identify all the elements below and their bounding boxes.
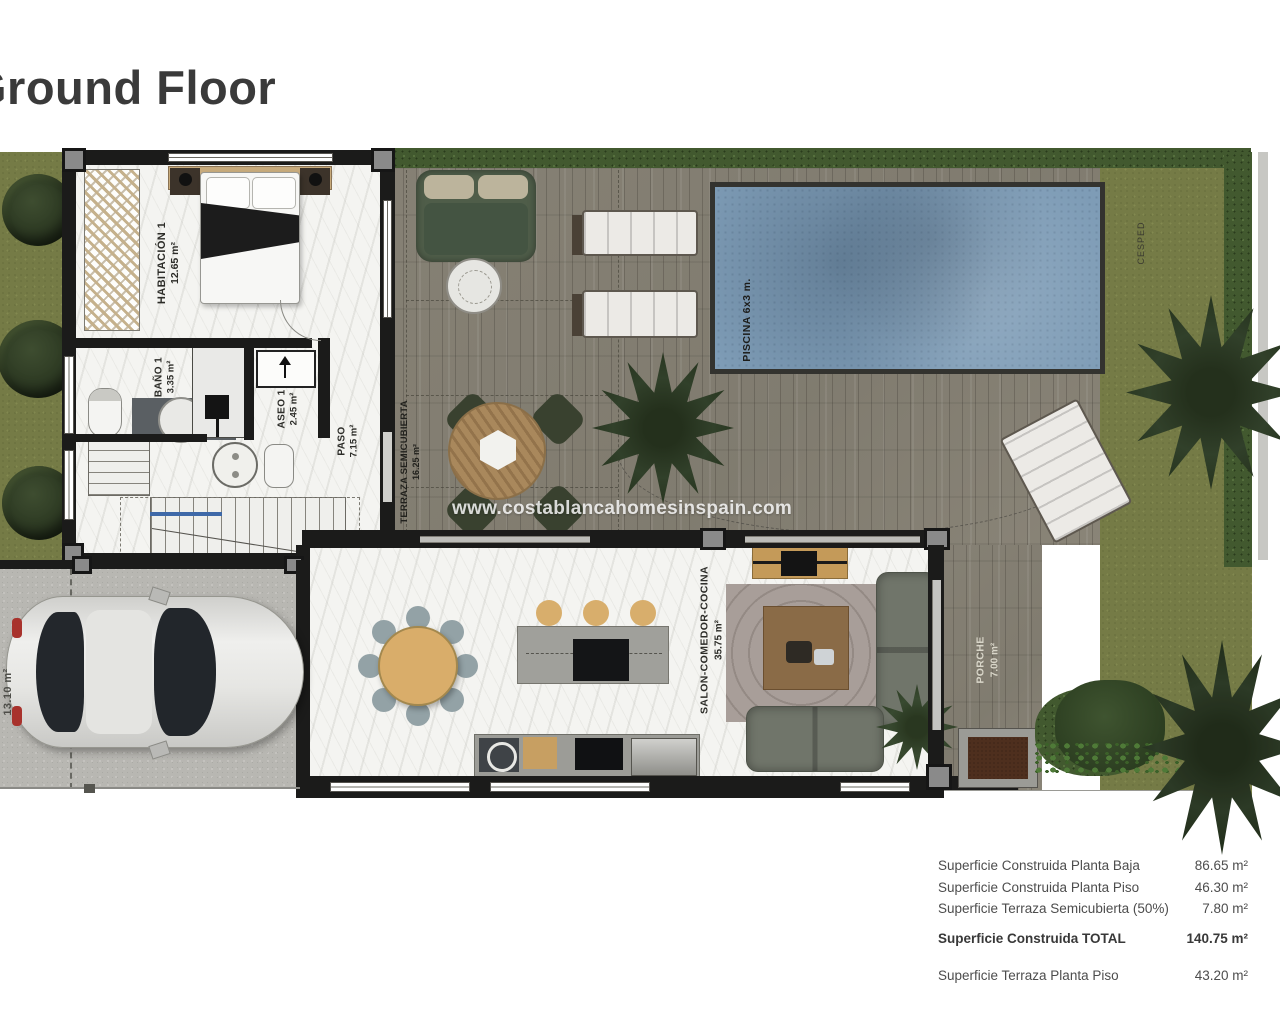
summary-label: Superficie Construida TOTAL xyxy=(938,928,1176,950)
bed xyxy=(200,172,300,304)
doormat-frame xyxy=(958,728,1038,788)
sliding-door-to-porche xyxy=(932,580,941,730)
room-label-aseo-1: ASEO 1 2.45 m² xyxy=(275,389,300,428)
aseo-toilet xyxy=(264,444,294,488)
toilet xyxy=(88,388,122,438)
summary-row: Superficie Construida Planta Baja 86.65 … xyxy=(938,855,1248,877)
rear-window xyxy=(36,612,84,732)
room-name: PORCHE xyxy=(975,636,989,683)
room-label-bano-1: BAÑO 1 3.35 m² xyxy=(152,357,177,397)
wall xyxy=(244,344,254,440)
room-area: 13.10 m² xyxy=(1,668,15,715)
room-name: CESPED xyxy=(1136,221,1148,264)
watermark: www.costablancahomesinspain.com xyxy=(452,498,782,520)
window xyxy=(64,450,74,520)
sofa xyxy=(746,706,884,772)
room-label-paso: PASO 7.15 m² xyxy=(335,425,360,458)
summary-row-total: Superficie Construida TOTAL 140.75 m² xyxy=(938,928,1248,950)
room-label-terraza: TERRAZA SEMICUBIERTA 16.25 m² xyxy=(399,400,423,523)
bar-stools xyxy=(536,600,562,626)
summary-value: 7.80 m² xyxy=(1176,898,1248,920)
pillow xyxy=(252,177,296,209)
window xyxy=(330,782,470,792)
page-title: Ground Floor xyxy=(0,60,276,115)
room-name: BAÑO 1 xyxy=(152,357,165,397)
room-name: PASO xyxy=(335,425,348,458)
room-label-salon: SALON-COMEDOR-COCINA 35.75 m² xyxy=(699,566,726,714)
summary-label: Superficie Construida Planta Baja xyxy=(938,855,1176,877)
room-area: 2.45 m² xyxy=(288,389,300,428)
windshield xyxy=(154,608,216,736)
room-label-habitacion-1: HABITACIÓN 1 12.65 m² xyxy=(155,222,183,304)
area-summary-table: Superficie Construida Planta Baja 86.65 … xyxy=(938,855,1248,987)
room-area: 16.25 m² xyxy=(411,400,423,523)
bedside-lamp xyxy=(179,173,192,186)
floor-plan-page: { "title": "Ground Floor", "watermark": … xyxy=(0,0,1280,1024)
room-name: SALON-COMEDOR-COCINA xyxy=(699,566,713,714)
wall xyxy=(62,338,312,348)
summary-label: Superficie Construida Planta Piso xyxy=(938,877,1176,899)
car-roof xyxy=(86,610,152,734)
cesped-label: CESPED xyxy=(1136,221,1148,264)
summary-value: 43.20 m² xyxy=(1176,965,1248,987)
room-name: PISCINA 6x3 m. xyxy=(741,278,755,361)
sliding-glass-door xyxy=(745,536,920,543)
wall-post xyxy=(62,148,86,172)
room-area: 3.35 m² xyxy=(165,357,177,397)
dining-table xyxy=(378,626,458,706)
summary-value: 46.30 m² xyxy=(1176,877,1248,899)
wall xyxy=(318,338,330,438)
shower-stem xyxy=(216,417,219,437)
room-label-porche: PORCHE 7.00 m² xyxy=(975,636,1002,683)
coffee-table xyxy=(763,606,849,690)
window xyxy=(64,356,74,434)
room-area: 12.65 m² xyxy=(169,222,183,304)
parking-area-label: 13.10 m² xyxy=(1,668,15,715)
room-area: 7.15 m² xyxy=(348,425,360,458)
summary-label: Superficie Terraza Planta Piso xyxy=(938,965,1176,987)
stairs-upper-flight xyxy=(88,440,150,496)
window xyxy=(383,200,392,318)
kitchen-island xyxy=(517,626,669,684)
room-name: HABITACIÓN 1 xyxy=(155,222,169,304)
room-name: TERRAZA SEMICUBIERTA xyxy=(399,400,411,523)
window xyxy=(168,153,333,162)
swimming-pool xyxy=(710,182,1105,374)
sun-lounger xyxy=(582,290,698,338)
fence-post xyxy=(72,556,92,574)
wardrobe xyxy=(84,169,140,331)
tv-console xyxy=(752,547,848,579)
wall xyxy=(62,434,207,442)
taillight xyxy=(12,618,22,638)
window xyxy=(840,782,910,792)
wall-post xyxy=(371,148,395,172)
wall-post xyxy=(700,528,726,550)
duvet-fold xyxy=(201,203,299,259)
shower-head xyxy=(205,395,229,419)
car xyxy=(6,596,304,748)
door-opening xyxy=(383,432,392,502)
gate-marker xyxy=(84,784,95,793)
room-area: 35.75 m² xyxy=(712,566,725,714)
kitchen-counter xyxy=(474,734,700,778)
summary-value: 86.65 m² xyxy=(1176,855,1248,877)
sliding-glass-door xyxy=(420,536,590,543)
pillow xyxy=(206,177,250,209)
driveway-bottom-line xyxy=(0,787,300,789)
summary-row: Superficie Terraza Semicubierta (50%) 7.… xyxy=(938,898,1248,920)
window xyxy=(490,782,650,792)
pool-label: PISCINA 6x3 m. xyxy=(741,278,755,361)
bedside-lamp xyxy=(309,173,322,186)
pergola-dashed-line xyxy=(406,395,618,396)
room-area: 7.00 m² xyxy=(988,636,1001,683)
driveway-fence xyxy=(0,560,302,569)
terrace-table xyxy=(448,402,546,500)
wall-post xyxy=(926,764,952,790)
side-table xyxy=(446,258,502,314)
summary-row: Superficie Terraza Planta Piso 43.20 m² xyxy=(938,965,1248,987)
summary-value: 140.75 m² xyxy=(1176,928,1248,950)
washing-machine xyxy=(256,350,316,388)
top-hedge xyxy=(385,148,1251,168)
aseo-basin xyxy=(212,442,258,488)
sun-lounger xyxy=(582,210,698,256)
shower xyxy=(192,346,246,438)
room-name: ASEO 1 xyxy=(275,389,288,428)
summary-label: Superficie Terraza Semicubierta (50%) xyxy=(938,898,1176,920)
summary-row: Superficie Construida Planta Piso 46.30 … xyxy=(938,877,1248,899)
outdoor-sofa xyxy=(416,170,536,262)
